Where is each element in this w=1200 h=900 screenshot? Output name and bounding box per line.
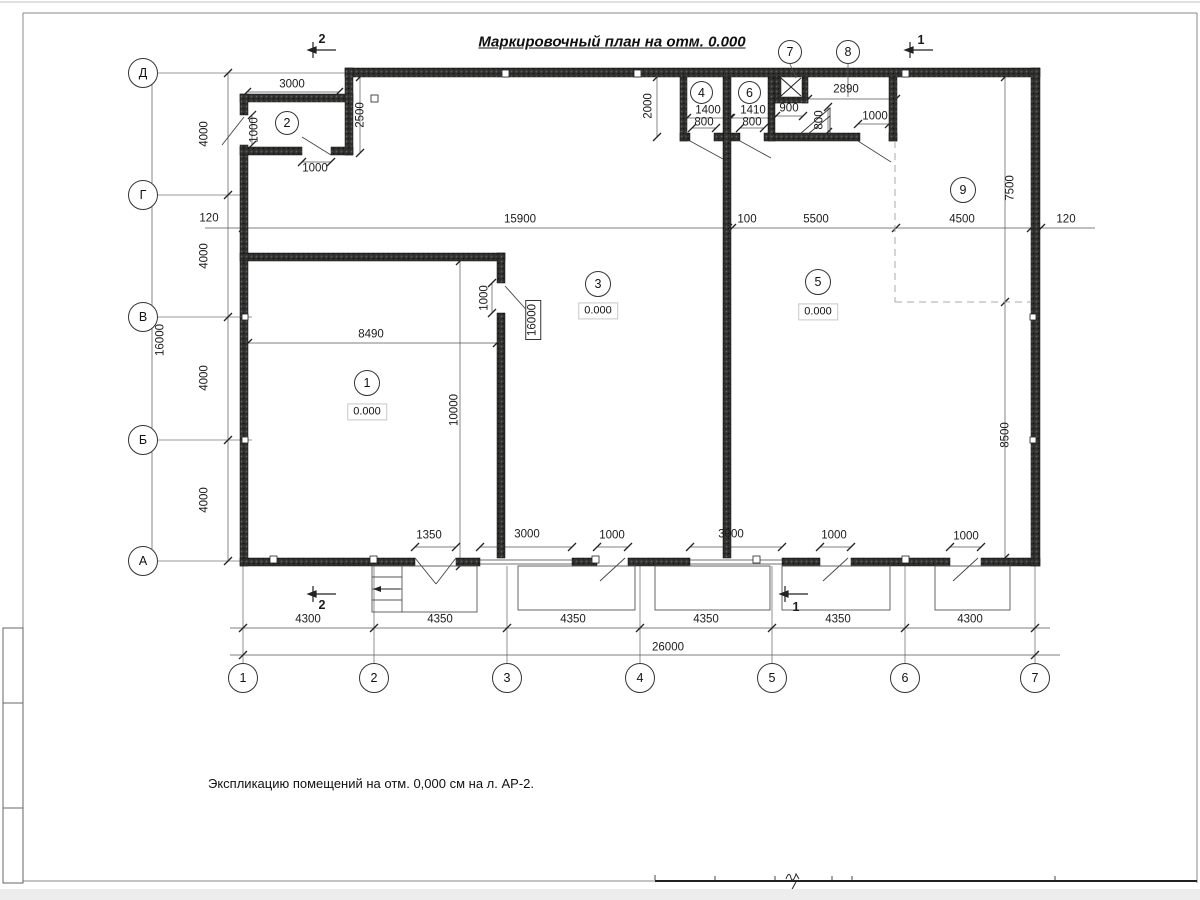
room-tag-2: 2 xyxy=(275,111,299,135)
axis-row-label: Б xyxy=(139,433,147,447)
room-tag-7: 7 xyxy=(778,40,802,64)
section-label-bottom-right: 1 xyxy=(793,601,800,614)
dim-2000-top: 2000 xyxy=(643,93,655,119)
dimension-ticks xyxy=(148,69,1045,659)
dim-2500-room2: 2500 xyxy=(355,102,367,128)
dim-col-1-2: 4300 xyxy=(295,614,321,626)
room-number: 7 xyxy=(787,45,794,59)
dim-1000-room2-door: 1000 xyxy=(249,117,261,143)
dim-col-2-3: 4350 xyxy=(427,614,453,626)
page-title: Маркировочный план на отм. 0.000 xyxy=(478,35,745,50)
room-tag-4: 4 xyxy=(690,81,713,104)
axis-col-label: 7 xyxy=(1032,671,1039,685)
room-number: 4 xyxy=(698,86,705,100)
room-number: 1 xyxy=(364,376,371,390)
porches xyxy=(372,566,1010,612)
elevation-mark-room3: 0.000 xyxy=(578,302,618,319)
dim-3000-window-a: 3000 xyxy=(514,529,540,541)
axis-col-label: 2 xyxy=(371,671,378,685)
dim-16000-boxed: 16000 xyxy=(525,300,541,340)
axis-row-g: Г xyxy=(128,180,158,210)
dim-8490-room1: 8490 xyxy=(358,329,384,341)
dim-7500-room9: 7500 xyxy=(1005,175,1017,201)
dim-4000-vb: 4000 xyxy=(199,365,211,391)
dim-2890-room8: 2890 xyxy=(833,84,859,96)
dim-1350-door: 1350 xyxy=(416,530,442,542)
axis-row-a: А xyxy=(128,546,158,576)
dim-120-right: 120 xyxy=(1056,214,1075,226)
stairs-direction-arrow xyxy=(373,586,400,592)
dim-1000-door-c: 1000 xyxy=(953,531,979,543)
floor-plan-drawing xyxy=(0,0,1200,900)
dim-3000-window-b: 3000 xyxy=(718,529,744,541)
shaft-cross-icon xyxy=(781,78,801,96)
dim-16000-left: 16000 xyxy=(155,324,167,356)
room-tag-8: 8 xyxy=(836,40,860,64)
elevation-mark-room5: 0.000 xyxy=(798,303,838,320)
dim-col-6-7: 4300 xyxy=(957,614,983,626)
dim-1000-door-b: 1000 xyxy=(821,530,847,542)
axis-col-1: 1 xyxy=(228,663,258,693)
dim-15900: 15900 xyxy=(504,214,536,226)
dim-1000-door-a: 1000 xyxy=(599,530,625,542)
room-tag-9: 9 xyxy=(950,177,976,203)
dim-1400-room4: 1400 xyxy=(695,105,721,117)
room-number: 5 xyxy=(815,275,822,289)
room-number: 6 xyxy=(746,86,753,100)
column-squares xyxy=(242,70,1036,563)
axis-col-label: 6 xyxy=(902,671,909,685)
axis-col-3: 3 xyxy=(492,663,522,693)
axis-lines xyxy=(158,73,1035,663)
axis-col-label: 4 xyxy=(637,671,644,685)
dim-26000-total: 26000 xyxy=(652,642,684,654)
section-markers xyxy=(308,42,933,602)
dimension-lines xyxy=(152,73,1095,655)
elevation-mark-room1: 0.000 xyxy=(347,403,387,420)
dim-800-room6: 800 xyxy=(742,117,761,129)
room-number: 2 xyxy=(284,116,291,130)
axis-col-2: 2 xyxy=(359,663,389,693)
axis-row-label: В xyxy=(139,310,147,324)
axis-col-6: 6 xyxy=(890,663,920,693)
section-label-bottom-left: 2 xyxy=(319,599,326,612)
dim-100: 100 xyxy=(737,214,756,226)
room-tag-5: 5 xyxy=(805,269,831,295)
dim-120-left: 120 xyxy=(199,213,218,225)
axis-row-d: Д xyxy=(128,58,158,88)
dim-col-4-5: 4350 xyxy=(693,614,719,626)
door-swings xyxy=(222,117,978,584)
dim-1000-room2-bottom: 1000 xyxy=(302,163,328,175)
dim-4000-gv: 4000 xyxy=(199,243,211,269)
dim-5500: 5500 xyxy=(803,214,829,226)
dim-4000-ba: 4000 xyxy=(199,487,211,513)
dim-8500-right: 8500 xyxy=(1000,422,1012,448)
dim-1410-room6: 1410 xyxy=(740,105,766,117)
axis-row-label: Г xyxy=(140,188,147,202)
room-tag-6: 6 xyxy=(738,81,761,104)
dim-1000-room8-door: 1000 xyxy=(862,111,888,123)
dim-800-ramp: 800 xyxy=(814,110,826,129)
room-number: 9 xyxy=(960,183,967,197)
room-number: 3 xyxy=(595,277,602,291)
axis-col-5: 5 xyxy=(757,663,787,693)
drawing-sheet: Маркировочный план на отм. 0.000 Эксплик… xyxy=(0,0,1200,900)
dim-4000-dg: 4000 xyxy=(199,121,211,147)
dim-col-5-6: 4350 xyxy=(825,614,851,626)
dim-800-room4: 800 xyxy=(694,117,713,129)
dim-900-shaft: 900 xyxy=(779,103,798,115)
dim-10000-room1: 10000 xyxy=(449,394,461,426)
dim-1000-room1-door: 1000 xyxy=(479,285,491,311)
section-label-top-left: 2 xyxy=(319,33,326,46)
note-text: Экспликацию помещений на отм. 0,000 см н… xyxy=(208,776,534,791)
axis-col-4: 4 xyxy=(625,663,655,693)
axis-col-7: 7 xyxy=(1020,663,1050,693)
axis-row-label: А xyxy=(139,554,147,568)
axis-row-label: Д xyxy=(139,66,147,80)
dim-4500: 4500 xyxy=(949,214,975,226)
axis-col-label: 5 xyxy=(769,671,776,685)
axis-row-b: Б xyxy=(128,425,158,455)
axis-col-label: 1 xyxy=(240,671,247,685)
sheet-frame xyxy=(0,2,1200,883)
section-label-top-right: 1 xyxy=(918,34,925,47)
room-tag-3: 3 xyxy=(585,271,611,297)
room-number: 8 xyxy=(845,45,852,59)
dim-3000-room2: 3000 xyxy=(279,79,305,91)
axis-col-label: 3 xyxy=(504,671,511,685)
page-shadow xyxy=(0,889,1200,900)
dim-col-3-4: 4350 xyxy=(560,614,586,626)
room-tag-1: 1 xyxy=(354,370,380,396)
